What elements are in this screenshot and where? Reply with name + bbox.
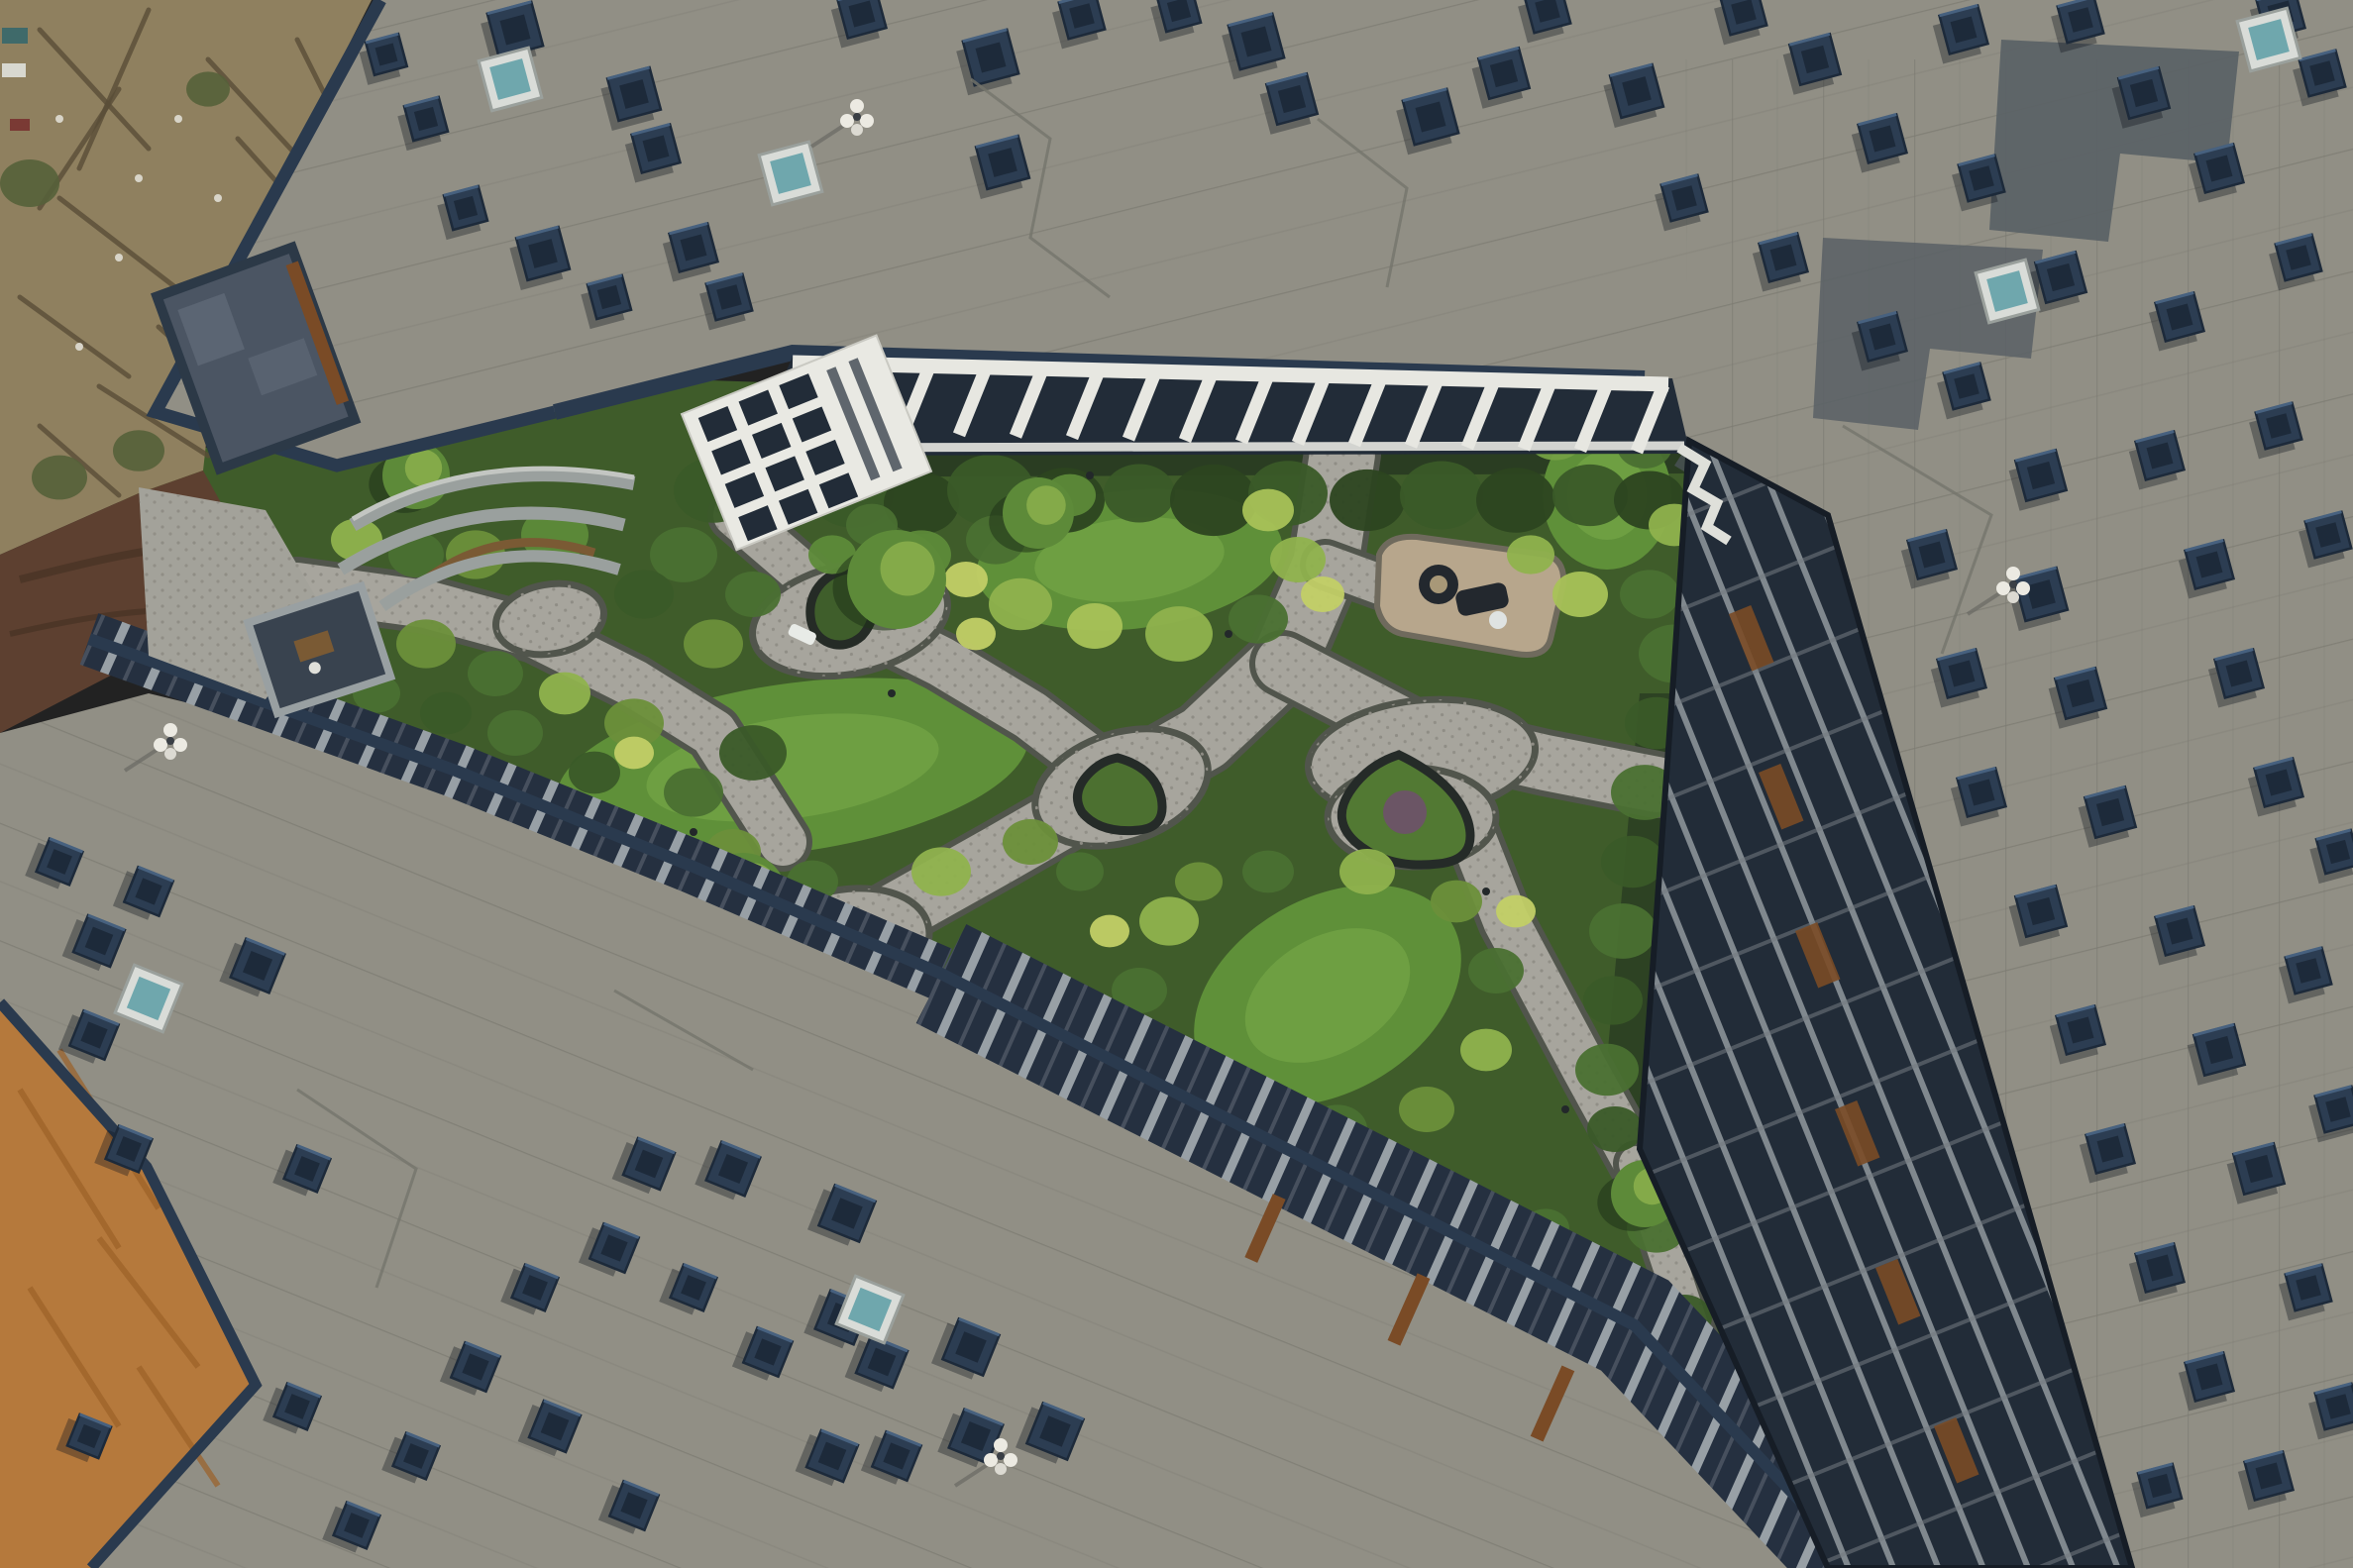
lamp-globe xyxy=(995,1463,1007,1475)
shrub xyxy=(1104,464,1175,522)
shrub xyxy=(1460,1029,1512,1072)
shrub xyxy=(1507,535,1554,574)
construction-material xyxy=(2,63,26,77)
path-light xyxy=(1225,630,1232,638)
shrub xyxy=(487,710,543,756)
shrub xyxy=(1003,819,1058,865)
lamp-pole xyxy=(166,737,174,745)
shrub xyxy=(1242,489,1294,532)
aerial-photo-stage xyxy=(0,0,2353,1568)
path-light xyxy=(888,689,896,697)
path-light xyxy=(690,828,697,836)
shrub xyxy=(989,578,1052,630)
shrub xyxy=(1587,1106,1643,1152)
debris xyxy=(135,174,143,182)
shrub xyxy=(396,619,456,668)
shrub xyxy=(1496,895,1536,928)
shrub xyxy=(1583,976,1643,1024)
shrub xyxy=(1431,881,1482,923)
weed-patch xyxy=(186,71,230,106)
shrub xyxy=(944,562,988,597)
shrub xyxy=(1145,606,1213,662)
shrub xyxy=(719,725,787,781)
tree-highlight xyxy=(881,542,935,596)
shrub xyxy=(1476,468,1555,533)
lamp-globe xyxy=(984,1453,998,1467)
ornamental-plant xyxy=(1383,790,1427,834)
lamp-pole xyxy=(997,1452,1005,1460)
shrub xyxy=(664,768,723,816)
lamp-globe xyxy=(2006,567,2020,580)
path-light xyxy=(1482,888,1490,895)
shrub xyxy=(1067,603,1123,649)
playground-detail xyxy=(1489,611,1507,629)
shrub xyxy=(1339,849,1395,894)
shrub xyxy=(725,572,781,617)
weed-patch xyxy=(113,430,164,471)
lamp-globe xyxy=(2007,591,2019,603)
lamp-pole xyxy=(2009,580,2017,588)
shrub xyxy=(1301,576,1344,612)
shrub xyxy=(1330,470,1405,531)
shrub xyxy=(911,847,971,895)
debris xyxy=(55,115,63,123)
shrub xyxy=(1056,852,1104,890)
skylight xyxy=(2237,8,2300,71)
aerial-photo xyxy=(0,0,2353,1568)
lamp-globe xyxy=(2016,581,2030,595)
construction-material xyxy=(10,119,30,131)
shrub xyxy=(468,651,523,696)
lamp-globe xyxy=(850,99,864,113)
lamp-globe xyxy=(173,738,187,752)
shrub xyxy=(1139,896,1199,945)
shrub xyxy=(1552,572,1608,617)
path-light xyxy=(1561,1105,1569,1113)
path-light xyxy=(1086,471,1094,479)
lamp-globe xyxy=(840,114,854,128)
skylight xyxy=(759,142,822,205)
weed-patch xyxy=(32,456,87,500)
tree-highlight xyxy=(1026,485,1066,525)
shrub xyxy=(684,619,743,668)
shrub xyxy=(1400,462,1483,530)
shrub xyxy=(1468,948,1524,993)
playground-mat xyxy=(1430,575,1447,593)
shrub xyxy=(1229,594,1288,643)
shrub xyxy=(956,618,996,651)
debris xyxy=(115,254,123,261)
weed-patch xyxy=(0,159,59,207)
construction-material xyxy=(2,28,28,44)
shrub xyxy=(614,737,654,770)
shrub xyxy=(1090,915,1129,948)
lamp-pole xyxy=(853,113,861,121)
shrub xyxy=(539,673,590,715)
lamp-globe xyxy=(860,114,874,128)
shrub xyxy=(420,692,472,735)
lamp-globe xyxy=(164,748,176,760)
debris xyxy=(174,115,182,123)
debris xyxy=(214,194,222,202)
shrub xyxy=(1170,465,1257,536)
shrub xyxy=(1589,903,1657,959)
lamp-globe xyxy=(994,1438,1008,1452)
lamp-globe xyxy=(163,723,177,737)
shrub xyxy=(1175,862,1223,900)
shrub xyxy=(569,752,620,794)
lamp-globe xyxy=(1004,1453,1017,1467)
debris xyxy=(75,343,83,351)
lamp-globe xyxy=(154,738,167,752)
shrub xyxy=(1242,851,1294,893)
shrub xyxy=(1575,1044,1639,1096)
skylight xyxy=(479,48,542,111)
shrub xyxy=(614,570,674,618)
lamp-globe xyxy=(1996,581,2010,595)
shrub xyxy=(1270,537,1326,582)
shrub xyxy=(1601,836,1664,888)
shrub xyxy=(1399,1087,1454,1132)
skylight xyxy=(1976,260,2039,323)
lamp-globe xyxy=(851,124,863,136)
shrub xyxy=(1620,570,1679,618)
